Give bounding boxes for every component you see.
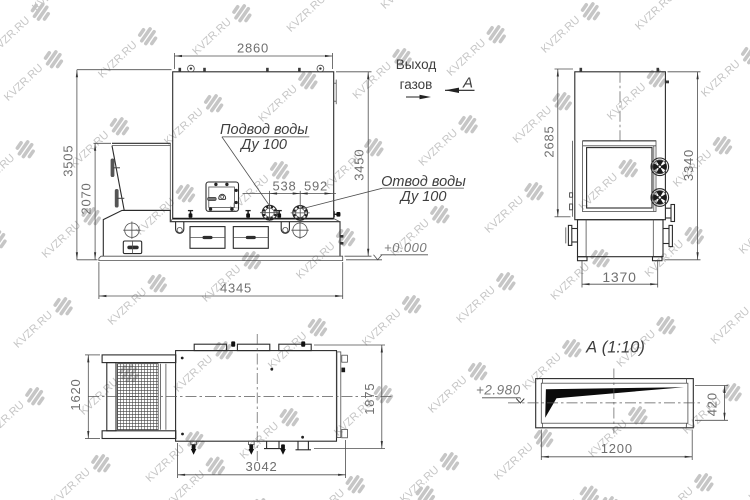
svg-text:А: А	[462, 75, 473, 92]
svg-text:4345: 4345	[220, 281, 252, 296]
svg-text:3450: 3450	[352, 149, 367, 181]
svg-text:3505: 3505	[61, 145, 76, 177]
svg-text:Ду 100: Ду 100	[239, 137, 287, 153]
svg-text:3340: 3340	[681, 149, 696, 181]
svg-text:Выход: Выход	[396, 57, 437, 72]
svg-text:1370: 1370	[602, 269, 636, 285]
svg-text:3042: 3042	[245, 459, 277, 474]
svg-text:А (1:10): А (1:10)	[585, 339, 645, 357]
svg-text:2860: 2860	[237, 41, 269, 56]
svg-text:420: 420	[705, 392, 720, 416]
svg-text:1200: 1200	[601, 441, 633, 456]
svg-text:+2.980: +2.980	[476, 383, 521, 398]
svg-text:газов: газов	[400, 77, 433, 92]
svg-text:538: 538	[272, 179, 296, 194]
svg-text:592: 592	[304, 179, 328, 194]
svg-text:Ду 100: Ду 100	[399, 189, 447, 205]
svg-text:2070: 2070	[79, 182, 94, 214]
svg-text:+0.000: +0.000	[384, 240, 427, 255]
svg-text:1875: 1875	[362, 383, 377, 415]
svg-text:Подвод воды: Подвод воды	[220, 122, 308, 138]
svg-text:1620: 1620	[68, 378, 83, 410]
svg-text:Отвод воды: Отвод воды	[381, 174, 466, 190]
svg-text:2685: 2685	[541, 125, 556, 157]
